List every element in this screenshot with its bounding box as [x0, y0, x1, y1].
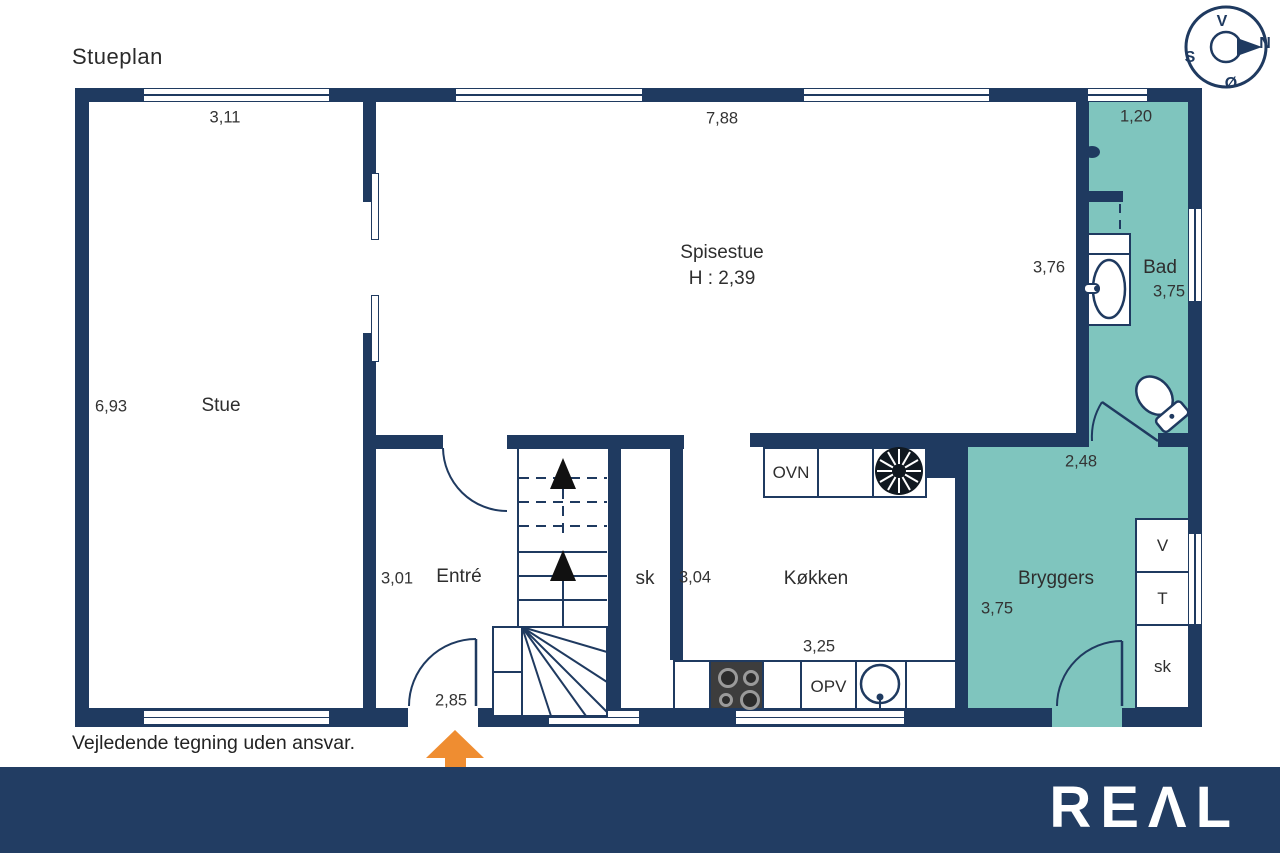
dim-stue-length: 6,93 — [95, 398, 127, 417]
dryer-box: T — [1135, 571, 1190, 626]
dim-bryggers-length: 3,75 — [981, 600, 1013, 619]
counter-segment — [762, 660, 802, 713]
counter-segment — [872, 447, 927, 498]
wall-entre-north-left — [365, 435, 443, 449]
window — [143, 88, 330, 102]
compass-n: N — [1259, 35, 1271, 52]
dim-spisestue-depth: 3,76 — [1033, 259, 1065, 278]
dim-spisestue-width: 7,88 — [706, 110, 738, 129]
window — [735, 710, 905, 725]
wall-kitchen-utility — [955, 447, 968, 708]
closet-label-hall: sk — [636, 568, 655, 590]
room-label-kokken: Køkken — [784, 568, 848, 590]
page-title: Stueplan — [72, 44, 163, 70]
stair-arrow-icon — [550, 550, 576, 581]
dishwasher-label: OPV — [811, 677, 847, 697]
compass-rose-icon: V N S Ø — [1178, 2, 1274, 98]
wall-bath-west — [1076, 102, 1089, 447]
footer-bar: REΛL — [0, 767, 1280, 853]
wall-closet-east — [670, 447, 683, 660]
dim-entre-width: 3,01 — [381, 570, 413, 589]
window-utility-east — [1188, 533, 1202, 625]
stair-upper-treads — [519, 478, 607, 533]
room-label-bad: Bad — [1143, 257, 1177, 279]
bath-utility-opening — [1090, 433, 1158, 447]
room-label-entre: Entré — [436, 566, 481, 588]
compass-o: Ø — [1225, 75, 1237, 92]
room-label-spisestue: Spisestue — [680, 242, 763, 264]
room-label-bryggers: Bryggers — [1018, 568, 1094, 590]
dim-bad-width: 1,20 — [1120, 108, 1152, 127]
washer-box: V — [1135, 518, 1190, 573]
window — [803, 88, 990, 102]
wall-bath-stub — [1076, 191, 1123, 202]
bathroom-vanity — [1086, 233, 1131, 326]
sliding-door-panel — [371, 173, 379, 240]
sliding-door-panel — [371, 295, 379, 362]
stair-winder — [493, 627, 607, 716]
stair-lower-treads — [519, 552, 607, 600]
dim-bad-length: 3,75 — [1153, 283, 1185, 302]
stair-walkline — [563, 581, 599, 663]
brand-logo: REΛL — [1049, 774, 1240, 841]
counter-segment — [673, 660, 711, 713]
dryer-label: T — [1157, 589, 1167, 609]
window-bathroom — [1087, 88, 1148, 102]
dim-bryggers-width: 2,48 — [1065, 453, 1097, 472]
entrance-arrow-icon — [426, 730, 484, 758]
compass-v: V — [1217, 13, 1228, 30]
utility-closet-box: sk — [1135, 624, 1190, 709]
counter-segment: OVN — [763, 447, 819, 498]
stair-arrow-icon — [550, 458, 576, 489]
cooktop — [709, 660, 764, 713]
ceiling-height-label: H : 2,39 — [689, 268, 756, 290]
wall-left — [75, 88, 89, 727]
window — [455, 88, 643, 102]
dishwasher-box: OPV — [800, 660, 857, 713]
counter-segment — [905, 660, 960, 713]
dim-kokken-depth: 3,04 — [679, 569, 711, 588]
window — [548, 710, 640, 725]
room-label-stue: Stue — [201, 395, 240, 417]
utility-closet-label: sk — [1154, 657, 1171, 677]
floorplan-sheet: Stueplan V N S Ø OVN — [0, 0, 1280, 853]
wall-bath-south-stub — [1158, 433, 1202, 447]
dim-kokken-width: 3,25 — [803, 638, 835, 657]
dim-entre-door: 2,85 — [435, 692, 467, 711]
wall-kitchen-north — [750, 433, 1076, 447]
washer-label: V — [1157, 536, 1168, 556]
compass-s: S — [1185, 49, 1196, 66]
disclaimer-text: Vejledende tegning uden ansvar. — [72, 732, 355, 755]
entre-door-arc — [443, 448, 507, 511]
window-bathroom-east — [1188, 208, 1202, 302]
counter-segment — [817, 447, 874, 498]
entrance-door-gap — [408, 708, 478, 727]
window — [143, 710, 330, 725]
oven-label: OVN — [773, 463, 810, 483]
wall-stair-north — [507, 435, 684, 449]
wall-stue-divider-bottom — [363, 333, 376, 708]
sink-box — [855, 660, 907, 713]
wall-right — [1188, 88, 1202, 727]
dim-stue-width: 3,11 — [210, 109, 241, 128]
wall-stair-east — [608, 447, 621, 708]
utility-door-gap — [1052, 708, 1122, 727]
